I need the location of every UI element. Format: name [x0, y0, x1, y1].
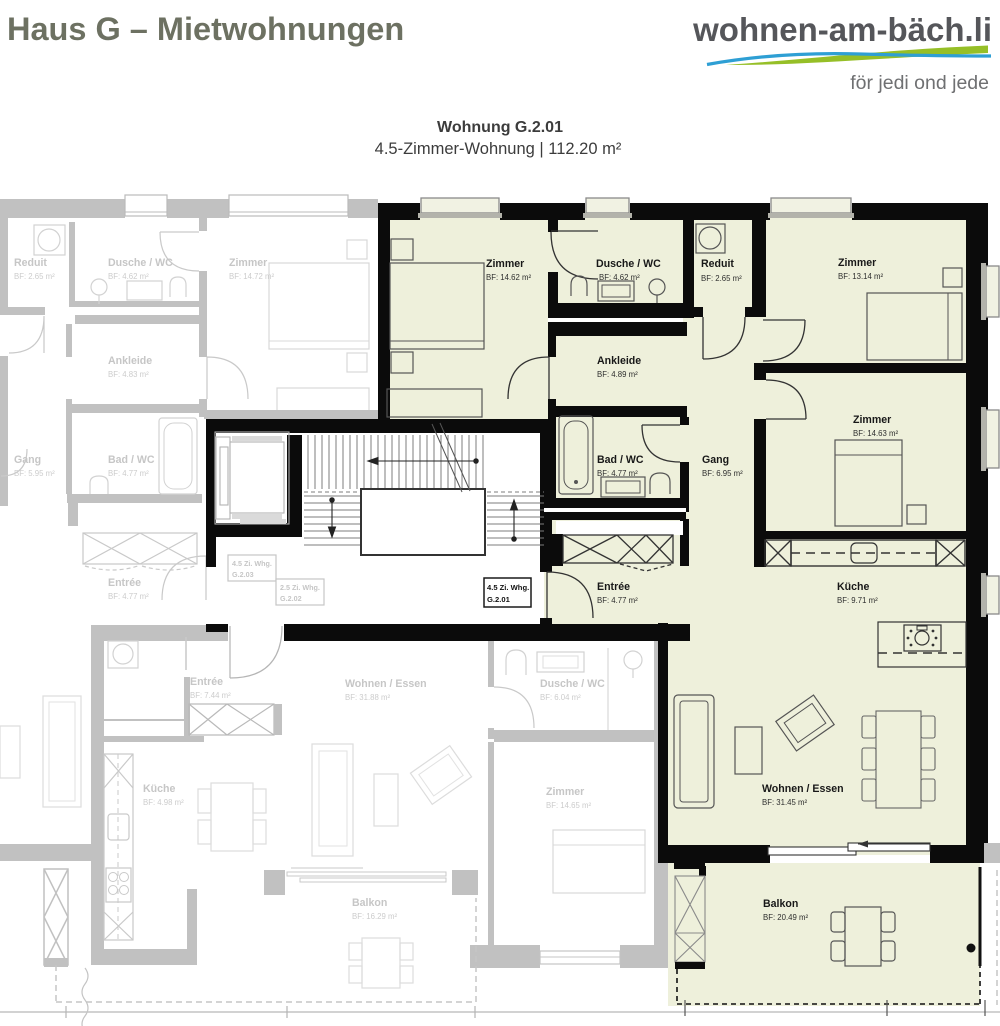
svg-text:wohnen-am-bäch.li: wohnen-am-bäch.li — [692, 11, 992, 48]
svg-text:BF: 4.98 m²: BF: 4.98 m² — [143, 798, 184, 807]
svg-text:Balkon: Balkon — [352, 897, 387, 909]
svg-text:Reduit: Reduit — [701, 258, 734, 270]
svg-text:Zimmer: Zimmer — [229, 257, 267, 269]
svg-text:Balkon: Balkon — [763, 898, 798, 910]
svg-text:2.5 Zi. Whg.: 2.5 Zi. Whg. — [280, 583, 320, 592]
svg-text:BF: 14.62 m²: BF: 14.62 m² — [486, 273, 531, 282]
svg-text:4.5 Zi. Whg.: 4.5 Zi. Whg. — [232, 559, 272, 568]
svg-text:BF: 31.45 m²: BF: 31.45 m² — [762, 798, 807, 807]
svg-text:Gang: Gang — [702, 454, 729, 466]
svg-text:BF: 4.62 m²: BF: 4.62 m² — [599, 273, 640, 282]
svg-text:Ankleide: Ankleide — [108, 355, 152, 367]
svg-text:BF: 2.65 m²: BF: 2.65 m² — [14, 272, 55, 281]
svg-text:BF: 2.65 m²: BF: 2.65 m² — [701, 274, 742, 283]
svg-text:Entrée: Entrée — [190, 676, 223, 688]
svg-text:Bad / WC: Bad / WC — [597, 454, 644, 466]
svg-text:BF: 20.49 m²: BF: 20.49 m² — [763, 913, 808, 922]
svg-text:BF: 5.95 m²: BF: 5.95 m² — [14, 469, 55, 478]
svg-text:BF: 31.88 m²: BF: 31.88 m² — [345, 693, 390, 702]
svg-text:BF: 4.77 m²: BF: 4.77 m² — [597, 469, 638, 478]
svg-text:Gang: Gang — [14, 454, 41, 466]
svg-text:BF: 6.95 m²: BF: 6.95 m² — [702, 469, 743, 478]
svg-text:BF: 4.77 m²: BF: 4.77 m² — [108, 592, 149, 601]
svg-text:för jedi ond jede: för jedi ond jede — [850, 72, 989, 94]
svg-text:Zimmer: Zimmer — [486, 258, 524, 270]
svg-text:BF: 6.04 m²: BF: 6.04 m² — [540, 693, 581, 702]
svg-text:BF: 7.44 m²: BF: 7.44 m² — [190, 691, 231, 700]
svg-text:Entrée: Entrée — [597, 581, 630, 593]
svg-text:G.2.03: G.2.03 — [232, 570, 254, 579]
svg-text:Wohnung G.2.01: Wohnung G.2.01 — [437, 119, 563, 136]
svg-text:BF: 14.72 m²: BF: 14.72 m² — [229, 272, 274, 281]
svg-text:BF: 14.63 m²: BF: 14.63 m² — [853, 429, 898, 438]
svg-text:Wohnen / Essen: Wohnen / Essen — [762, 783, 844, 795]
svg-text:Dusche / WC: Dusche / WC — [596, 258, 661, 270]
svg-text:BF: 4.83 m²: BF: 4.83 m² — [108, 370, 149, 379]
svg-text:BF: 16.29 m²: BF: 16.29 m² — [352, 912, 397, 921]
svg-text:Zimmer: Zimmer — [853, 414, 891, 426]
svg-text:Ankleide: Ankleide — [597, 355, 641, 367]
svg-text:G.2.01: G.2.01 — [487, 595, 511, 604]
svg-text:G.2.02: G.2.02 — [280, 594, 302, 603]
svg-text:Wohnen / Essen: Wohnen / Essen — [345, 678, 427, 690]
svg-text:BF: 13.14 m²: BF: 13.14 m² — [838, 272, 883, 281]
svg-text:BF: 4.77 m²: BF: 4.77 m² — [597, 596, 638, 605]
svg-text:BF: 14.65 m²: BF: 14.65 m² — [546, 801, 591, 810]
svg-text:Küche: Küche — [143, 783, 175, 795]
svg-text:Reduit: Reduit — [14, 257, 47, 269]
svg-text:BF: 4.77 m²: BF: 4.77 m² — [108, 469, 149, 478]
svg-text:4.5 Zi. Whg.: 4.5 Zi. Whg. — [487, 583, 529, 592]
svg-text:Dusche / WC: Dusche / WC — [108, 257, 173, 269]
svg-text:Zimmer: Zimmer — [838, 257, 876, 269]
svg-text:Haus G – Mietwohnungen: Haus G – Mietwohnungen — [7, 11, 404, 47]
svg-text:BF: 4.62 m²: BF: 4.62 m² — [108, 272, 149, 281]
svg-text:Dusche / WC: Dusche / WC — [540, 678, 605, 690]
svg-text:Bad / WC: Bad / WC — [108, 454, 155, 466]
svg-text:BF: 9.71 m²: BF: 9.71 m² — [837, 596, 878, 605]
svg-text:Küche: Küche — [837, 581, 869, 593]
svg-text:Entrée: Entrée — [108, 577, 141, 589]
svg-text:Zimmer: Zimmer — [546, 786, 584, 798]
svg-text:BF: 4.89 m²: BF: 4.89 m² — [597, 370, 638, 379]
svg-text:4.5-Zimmer-Wohnung | 112.20 m²: 4.5-Zimmer-Wohnung | 112.20 m² — [375, 140, 622, 158]
